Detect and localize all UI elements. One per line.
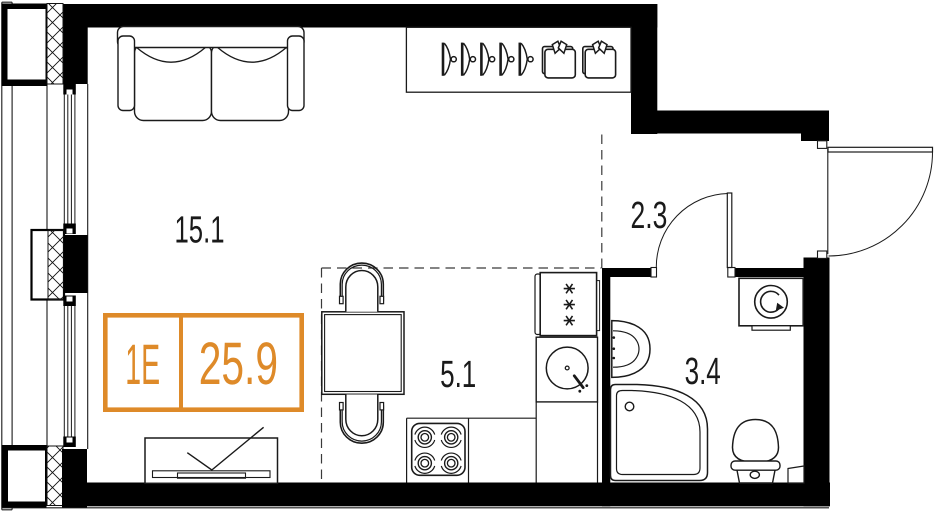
svg-text:5.1: 5.1 [440,354,476,396]
svg-text:1E: 1E [125,333,160,397]
svg-text:3.4: 3.4 [685,351,721,393]
svg-text:15.1: 15.1 [175,210,225,252]
svg-text:2.3: 2.3 [631,195,668,237]
svg-text:25.9: 25.9 [199,330,278,397]
